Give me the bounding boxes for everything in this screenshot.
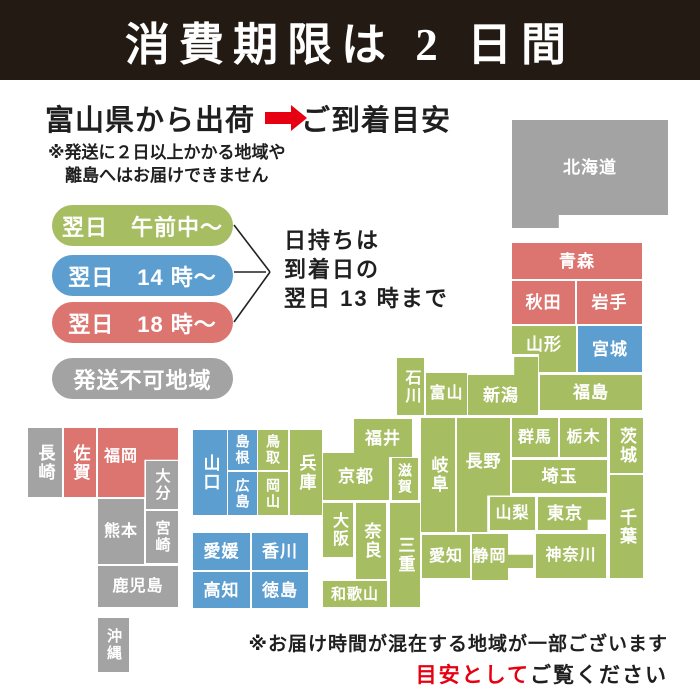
prefecture-label: 兵庫 bbox=[298, 454, 315, 492]
map-prefecture: 愛知 bbox=[422, 535, 470, 578]
prefecture-label: 和歌山 bbox=[331, 587, 379, 602]
prefecture-label: 岩手 bbox=[592, 294, 628, 311]
intro-heading: 富山県から出荷 ご到着目安 bbox=[45, 97, 451, 139]
legend-connector-lines bbox=[228, 204, 278, 334]
prefecture-label: 東京 bbox=[547, 505, 583, 522]
prefecture-label: 大分 bbox=[155, 468, 170, 502]
legend-label: 翌日 18 時～ bbox=[68, 307, 217, 339]
prefecture-label: 千葉 bbox=[618, 508, 635, 546]
map-prefecture: 山口 bbox=[193, 430, 227, 515]
map-prefecture: 山梨 bbox=[490, 497, 535, 530]
prefecture-label: 群馬 bbox=[518, 430, 552, 446]
shipping-infographic: 消費期限は 2 日間 富山県から出荷 ご到着目安 ※発送に２日以上かかる地域や … bbox=[0, 0, 700, 700]
map-prefecture: 群馬 bbox=[512, 418, 558, 457]
map-prefecture: 青森 bbox=[512, 243, 642, 279]
map-prefecture: 沖縄 bbox=[98, 618, 129, 672]
footer-suffix: ご覧ください bbox=[530, 664, 668, 687]
map-prefecture: 三重 bbox=[390, 503, 420, 607]
prefecture-label: 愛媛 bbox=[204, 543, 240, 560]
map-prefecture: 鹿児島 bbox=[98, 566, 178, 607]
prefecture-label: 栃木 bbox=[566, 430, 600, 446]
prefecture-label: 石川 bbox=[403, 369, 419, 405]
legend-next-day-18: 翌日 18 時～ bbox=[52, 302, 233, 343]
footer-notes: ※お届け時間が混在する地域が一部ございます 目安としてご覧ください bbox=[249, 629, 668, 689]
prefecture-label: 静岡 bbox=[472, 549, 506, 565]
page-title: 消費期限は 2 日間 bbox=[125, 8, 575, 73]
arrival-label: ご到着目安 bbox=[301, 97, 451, 139]
map-prefecture: 神奈川 bbox=[536, 534, 606, 578]
prefecture-label: 愛知 bbox=[429, 549, 463, 565]
prefecture-label: 三重 bbox=[397, 536, 414, 574]
map-prefecture: 香川 bbox=[252, 533, 308, 570]
map-prefecture: 広島 bbox=[228, 472, 257, 515]
map-prefecture: 鳥取 bbox=[258, 430, 288, 470]
prefecture-label: 大阪 bbox=[330, 512, 346, 548]
legend-no-shipping: 発送不可地域 bbox=[52, 358, 233, 399]
prefecture-label: 宮崎 bbox=[155, 520, 170, 554]
prefecture-label: 福井 bbox=[365, 430, 401, 447]
prefecture-label: 沖縄 bbox=[106, 628, 121, 662]
map-prefecture: 東京 bbox=[538, 497, 606, 530]
note-line-1: ※発送に２日以上かかる地域や bbox=[48, 141, 286, 164]
map-prefecture: 大分 bbox=[146, 461, 178, 509]
note-line-2: 離島へはお届けできません bbox=[48, 164, 286, 187]
map-prefecture: 岐阜 bbox=[421, 418, 455, 532]
prefecture-label: 徳島 bbox=[262, 582, 298, 599]
prefecture-label: 北海道 bbox=[563, 159, 617, 176]
prefecture-label: 宮城 bbox=[592, 341, 628, 358]
prefecture-label: 高知 bbox=[204, 582, 240, 599]
map-prefecture: 熊本 bbox=[98, 499, 144, 564]
prefecture-label: 富山 bbox=[429, 386, 463, 402]
map-prefecture: 福島 bbox=[540, 375, 642, 410]
prefecture-label: 秋田 bbox=[526, 294, 562, 311]
map-prefecture: 長崎 bbox=[28, 428, 62, 497]
map-prefecture: 愛媛 bbox=[193, 533, 250, 570]
map-prefecture: 奈良 bbox=[356, 503, 386, 579]
map-prefecture: 高知 bbox=[193, 572, 250, 608]
map-prefecture: 和歌山 bbox=[323, 581, 387, 607]
prefecture-label: 熊本 bbox=[104, 524, 138, 540]
map-prefecture: 千葉 bbox=[610, 475, 643, 578]
map-prefecture: 茨城 bbox=[610, 418, 643, 473]
map-prefecture: 岩手 bbox=[577, 281, 642, 324]
prefecture-label: 岡山 bbox=[266, 478, 280, 510]
map-prefecture: 秋田 bbox=[512, 281, 575, 324]
shelf-note-line-3: 翌日 13 時まで bbox=[284, 284, 449, 313]
map-prefecture: 福井 bbox=[354, 419, 412, 457]
prefecture-label: 香川 bbox=[262, 543, 298, 560]
shipping-restriction-note: ※発送に２日以上かかる地域や 離島へはお届けできません bbox=[48, 141, 286, 187]
prefecture-label: 島根 bbox=[236, 434, 250, 466]
prefecture-label: 長野 bbox=[466, 453, 502, 470]
prefecture-label: 山形 bbox=[526, 336, 562, 353]
prefecture-label: 青森 bbox=[559, 253, 595, 270]
map-prefecture: 宮崎 bbox=[146, 511, 178, 563]
shelf-life-note: 日持ちは 到着日の 翌日 13 時まで bbox=[284, 226, 449, 313]
prefecture-label: 神奈川 bbox=[545, 548, 596, 564]
map-prefecture: 新潟 bbox=[468, 357, 538, 415]
legend-label: 翌日 午前中～ bbox=[62, 210, 223, 242]
prefecture-label: 鳥取 bbox=[266, 434, 280, 466]
map-prefecture: 佐賀 bbox=[64, 428, 96, 497]
prefecture-label: 山梨 bbox=[495, 506, 529, 522]
header-banner: 消費期限は 2 日間 bbox=[0, 0, 700, 80]
legend-label: 発送不可地域 bbox=[73, 363, 211, 395]
legend-label: 翌日 14 時～ bbox=[68, 260, 217, 292]
map-prefecture: 北海道 bbox=[512, 120, 668, 228]
legend-next-day-morning: 翌日 午前中～ bbox=[52, 205, 233, 246]
prefecture-label: 鹿児島 bbox=[112, 579, 163, 595]
map-prefecture: 兵庫 bbox=[290, 430, 322, 515]
footer-emphasis: 目安として bbox=[416, 664, 530, 687]
map-prefecture: 富山 bbox=[426, 373, 467, 415]
map-prefecture: 宮城 bbox=[578, 326, 642, 372]
prefecture-label: 京都 bbox=[338, 468, 374, 485]
map-prefecture: 栃木 bbox=[560, 418, 607, 457]
prefecture-label: 福岡 bbox=[104, 449, 138, 465]
right-arrow-icon bbox=[265, 112, 291, 124]
prefecture-label: 滋賀 bbox=[398, 463, 412, 495]
map-prefecture: 静岡 bbox=[472, 534, 533, 580]
shelf-note-line-1: 日持ちは bbox=[284, 226, 449, 255]
prefecture-label: 福島 bbox=[573, 384, 609, 401]
map-prefecture: 徳島 bbox=[252, 572, 308, 608]
footer-guide-note: 目安としてご覧ください bbox=[249, 659, 668, 689]
map-prefecture: 大阪 bbox=[323, 503, 353, 557]
prefecture-label: 長崎 bbox=[37, 444, 54, 482]
prefecture-label: 埼玉 bbox=[542, 468, 578, 485]
prefecture-label: 岐阜 bbox=[430, 456, 447, 494]
map-prefecture: 京都 bbox=[323, 453, 389, 500]
map-prefecture: 島根 bbox=[228, 430, 257, 470]
prefecture-label: 山口 bbox=[202, 454, 219, 492]
map-prefecture: 岡山 bbox=[258, 472, 288, 515]
prefecture-label: 佐賀 bbox=[72, 444, 89, 482]
map-prefecture: 埼玉 bbox=[512, 460, 607, 493]
shelf-note-line-2: 到着日の bbox=[284, 255, 449, 284]
prefecture-label: 奈良 bbox=[363, 522, 380, 560]
ship-from-label: 富山県から出荷 bbox=[45, 97, 255, 139]
map-prefecture: 石川 bbox=[397, 358, 424, 415]
footer-mixed-area-note: ※お届け時間が混在する地域が一部ございます bbox=[249, 629, 668, 656]
map-prefecture: 滋賀 bbox=[392, 458, 418, 500]
prefecture-label: 新潟 bbox=[483, 387, 519, 404]
prefecture-label: 茨城 bbox=[618, 427, 635, 465]
legend-next-day-14: 翌日 14 時～ bbox=[52, 255, 233, 296]
prefecture-label: 広島 bbox=[236, 478, 250, 510]
